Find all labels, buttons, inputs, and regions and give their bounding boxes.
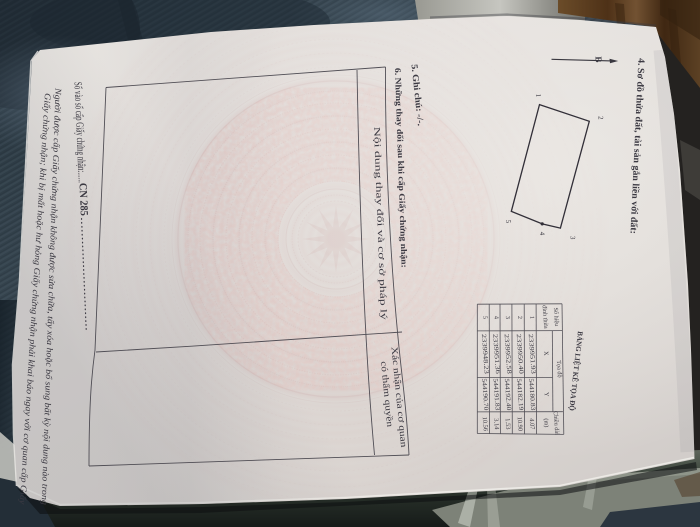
svg-text:B: B (594, 56, 604, 62)
svg-text:Số hiệu: Số hiệu (552, 307, 560, 326)
svg-text:3.14: 3.14 (492, 418, 500, 430)
svg-text:Tọa độ: Tọa độ (555, 360, 563, 378)
svg-text:10.90: 10.90 (516, 416, 524, 431)
svg-text:1: 1 (528, 316, 535, 320)
svg-text:2: 2 (516, 316, 523, 320)
svg-text:CN 285: CN 285 (77, 183, 90, 217)
svg-text:4: 4 (492, 316, 499, 320)
svg-text:5: 5 (481, 316, 488, 320)
svg-text:10.56: 10.56 (481, 416, 489, 431)
svg-text:1.53: 1.53 (504, 418, 512, 430)
svg-text:3: 3 (504, 316, 511, 320)
svg-text:4.07: 4.07 (528, 418, 536, 430)
svg-text:(m): (m) (542, 418, 550, 427)
